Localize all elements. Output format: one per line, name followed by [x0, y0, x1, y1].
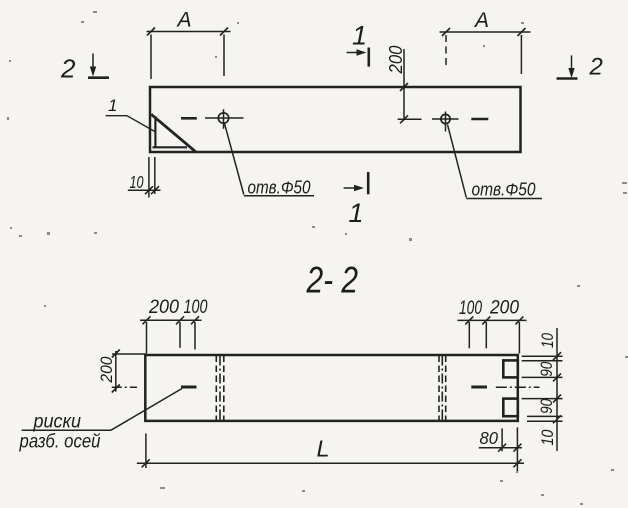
- svg-text:2: 2: [589, 54, 603, 81]
- svg-text:отв.Φ50: отв.Φ50: [472, 180, 536, 200]
- svg-text:1: 1: [349, 198, 364, 228]
- svg-text:90: 90: [538, 398, 556, 414]
- svg-text:200: 200: [98, 356, 116, 384]
- svg-text:200: 200: [489, 298, 519, 319]
- svg-text:10: 10: [539, 429, 557, 446]
- svg-text:разб. осей: разб. осей: [19, 432, 101, 453]
- svg-text:10: 10: [539, 332, 557, 348]
- svg-text:90: 90: [538, 361, 556, 377]
- svg-text:A: A: [473, 9, 489, 32]
- svg-text:80: 80: [480, 428, 499, 448]
- svg-text:10: 10: [130, 172, 144, 192]
- svg-text:1: 1: [352, 21, 367, 51]
- svg-text:риски: риски: [33, 412, 82, 433]
- svg-text:L: L: [317, 436, 330, 462]
- svg-text:1: 1: [108, 96, 117, 115]
- svg-text:2- 2: 2- 2: [306, 260, 359, 301]
- svg-text:100: 100: [184, 297, 208, 318]
- svg-text:200: 200: [148, 297, 179, 318]
- svg-text:200: 200: [386, 46, 406, 75]
- svg-text:A: A: [176, 9, 192, 32]
- svg-text:100: 100: [459, 298, 482, 319]
- svg-text:2: 2: [60, 53, 76, 83]
- svg-text:отв.Φ50: отв.Φ50: [248, 178, 311, 198]
